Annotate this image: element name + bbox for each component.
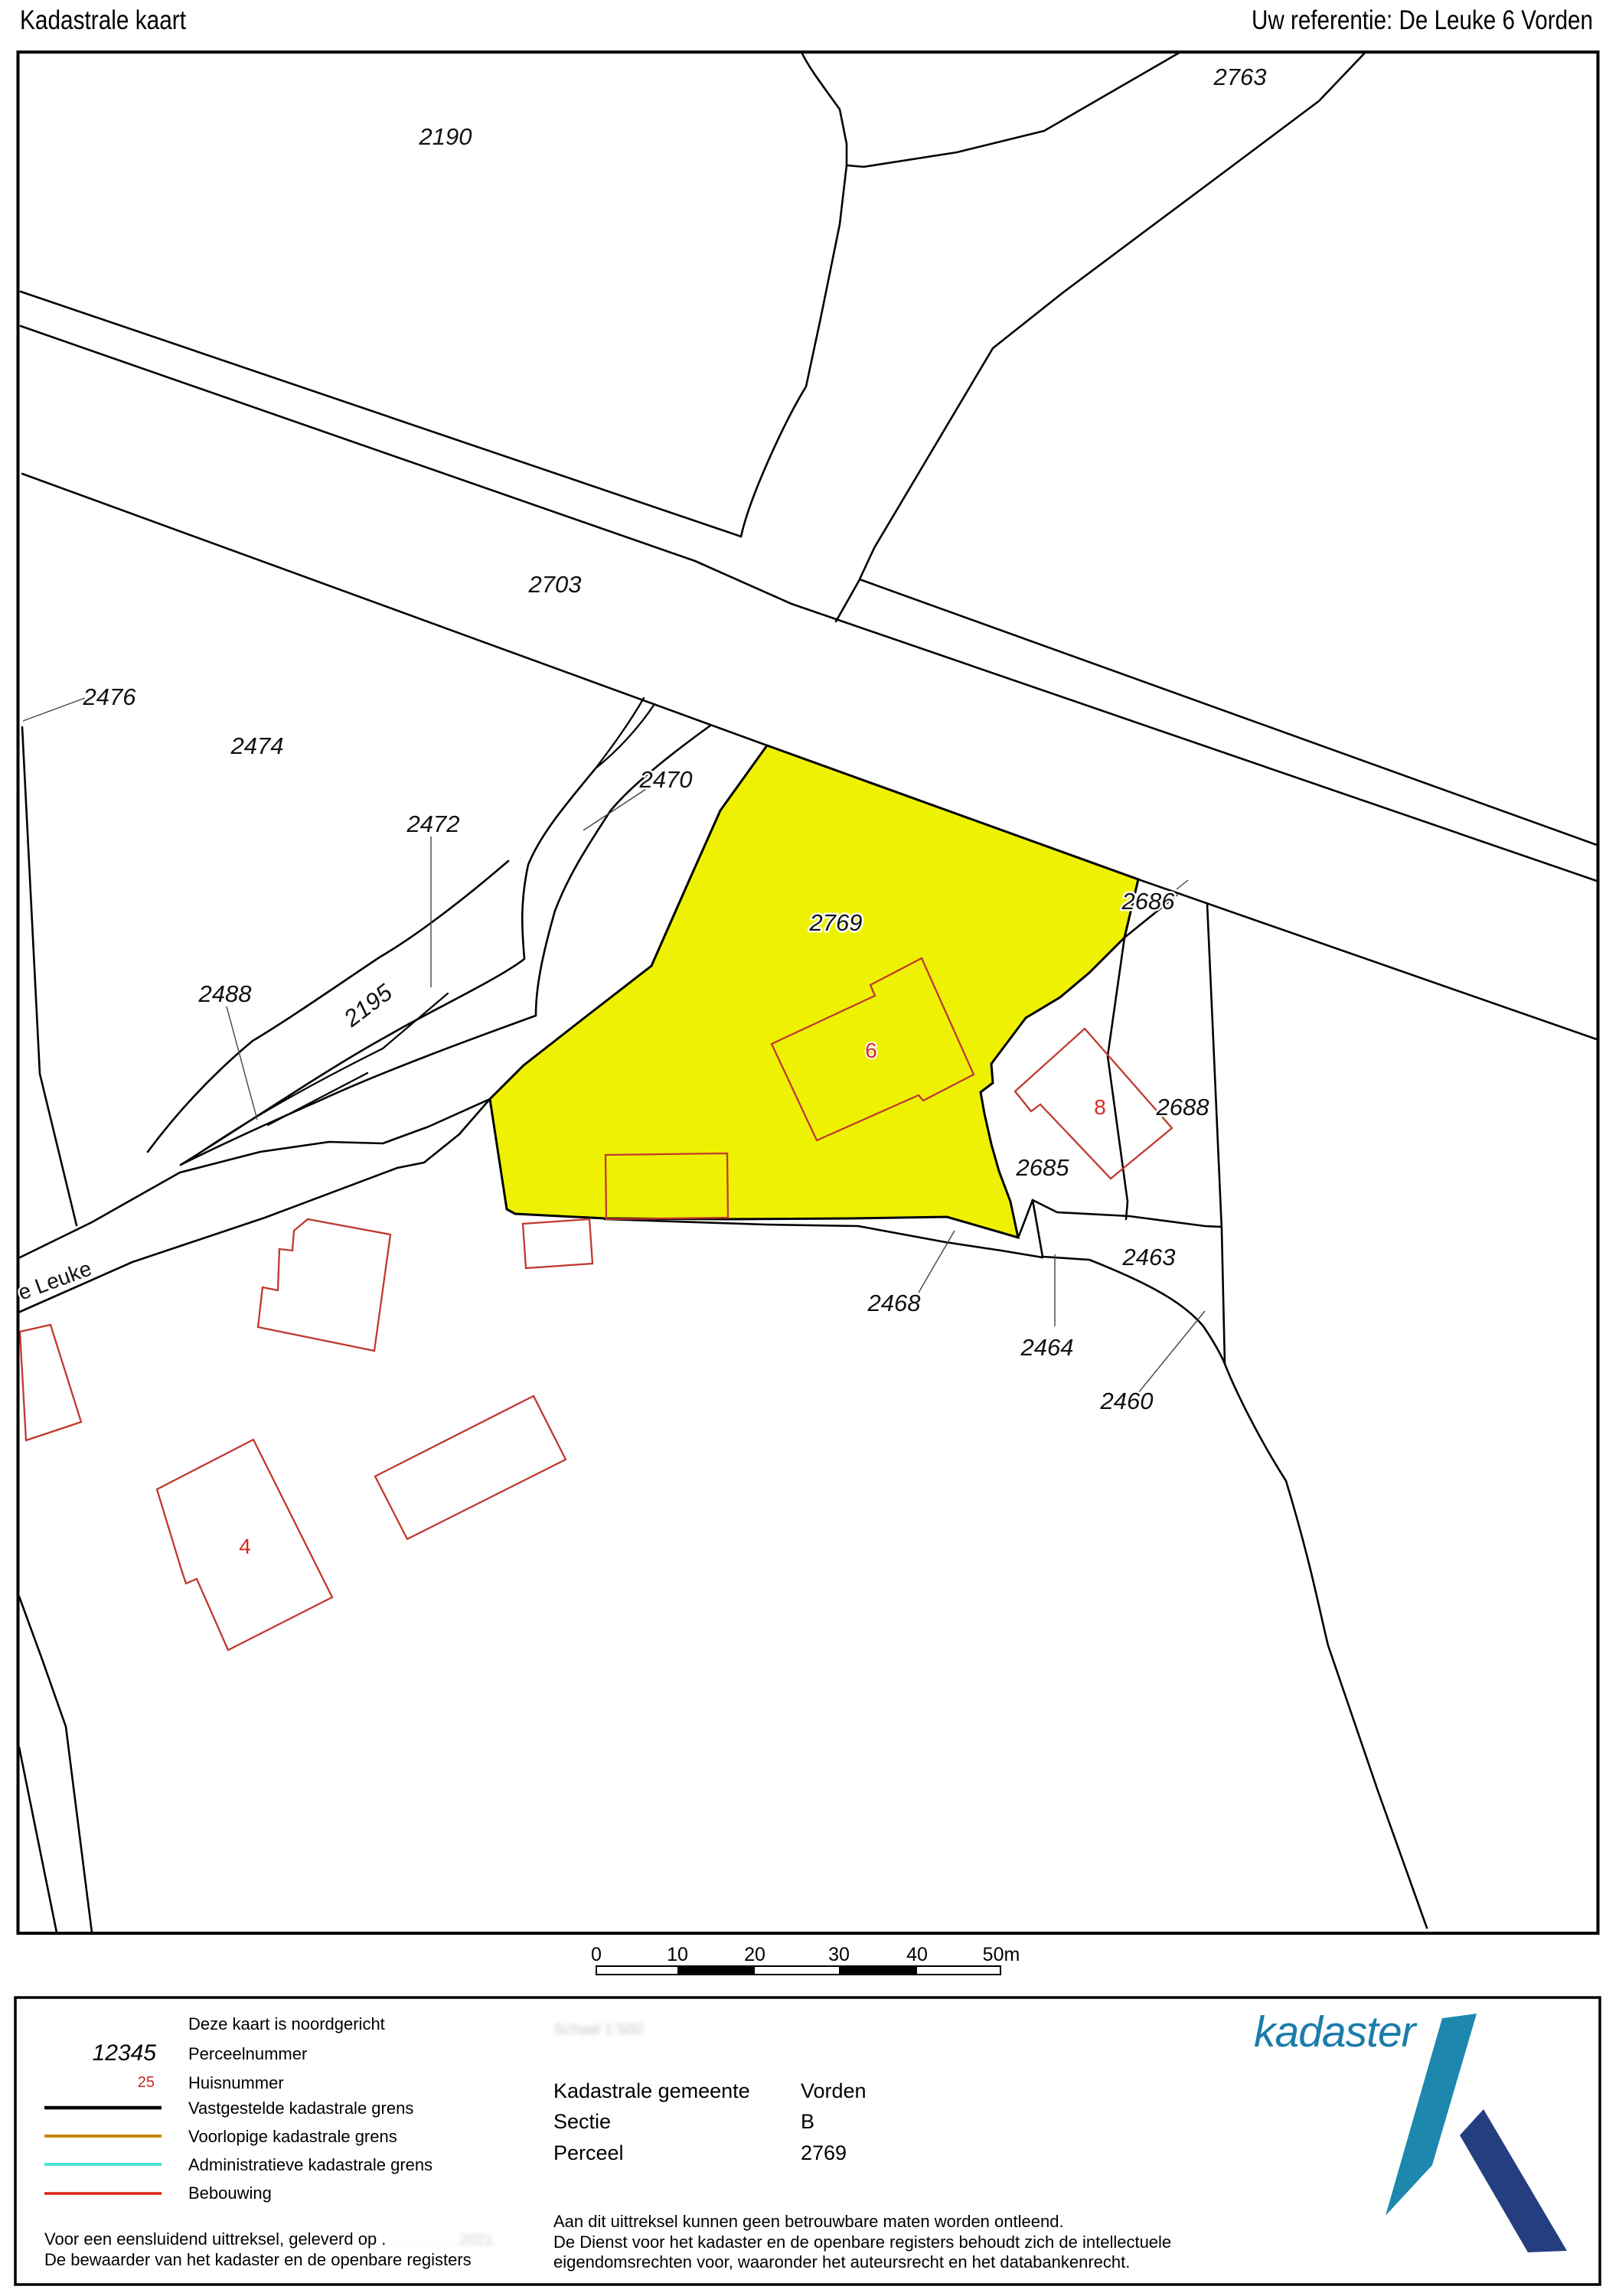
svg-text:Perceel: Perceel — [553, 2141, 624, 2164]
svg-text:Kadastrale gemeente: Kadastrale gemeente — [553, 2079, 750, 2102]
svg-text:Bebouwing: Bebouwing — [188, 2183, 272, 2203]
svg-text:2703: 2703 — [528, 571, 582, 598]
svg-text:2474: 2474 — [230, 732, 284, 759]
svg-text:De Dienst voor het kadaster en: De Dienst voor het kadaster en de openba… — [553, 2232, 1171, 2252]
svg-text:2769: 2769 — [801, 2141, 847, 2164]
svg-text:Administratieve kadastrale gre: Administratieve kadastrale grens — [188, 2155, 432, 2174]
svg-text:2769: 2769 — [809, 909, 863, 936]
svg-text:50m: 50m — [983, 1944, 1020, 1965]
svg-text:Vastgestelde kadastrale grens: Vastgestelde kadastrale grens — [188, 2099, 413, 2118]
svg-text:Vorden: Vorden — [801, 2079, 867, 2102]
svg-text:Voor een eensluidend uittrekse: Voor een eensluidend uittreksel, gelever… — [44, 2229, 386, 2249]
svg-text:2688: 2688 — [1156, 1094, 1210, 1120]
svg-text:Aan dit uittreksel kunnen geen: Aan dit uittreksel kunnen geen betrouwba… — [553, 2212, 1064, 2231]
svg-text:Kadastrale kaart: Kadastrale kaart — [20, 5, 186, 35]
svg-text:2470: 2470 — [639, 766, 693, 793]
svg-text:eigendomsrechten voor, waarond: eigendomsrechten voor, waaronder het aut… — [553, 2252, 1130, 2272]
svg-text:2472: 2472 — [406, 810, 460, 837]
svg-text:2190: 2190 — [419, 123, 472, 150]
svg-text:2685: 2685 — [1016, 1154, 1070, 1181]
svg-text:Huisnummer: Huisnummer — [188, 2073, 284, 2092]
svg-text:30: 30 — [828, 1944, 850, 1965]
svg-text:2488: 2488 — [198, 980, 253, 1007]
svg-text:Deze kaart is noordgericht: Deze kaart is noordgericht — [188, 2014, 385, 2033]
svg-text:2476: 2476 — [83, 683, 137, 710]
svg-text:Perceelnummer: Perceelnummer — [188, 2044, 307, 2063]
svg-text:2463: 2463 — [1122, 1244, 1176, 1270]
svg-text:8: 8 — [1094, 1095, 1106, 1119]
svg-text:25: 25 — [138, 2074, 155, 2091]
svg-text:Uw referentie: De Leuke 6 Vord: Uw referentie: De Leuke 6 Vorden — [1252, 5, 1593, 35]
svg-text:12345: 12345 — [93, 2040, 157, 2066]
svg-text:2468: 2468 — [867, 1290, 922, 1316]
svg-text:2464: 2464 — [1020, 1334, 1074, 1361]
svg-text:10: 10 — [667, 1944, 688, 1965]
svg-text:0: 0 — [591, 1944, 602, 1965]
svg-text:4: 4 — [239, 1534, 251, 1558]
svg-text:Schaal 1:500: Schaal 1:500 — [553, 2021, 643, 2038]
svg-text:20: 20 — [744, 1944, 765, 1965]
svg-text:De bewaarder van het kadaster: De bewaarder van het kadaster en de open… — [44, 2250, 472, 2269]
svg-text:6: 6 — [865, 1039, 877, 1062]
svg-text:B: B — [801, 2110, 814, 2133]
svg-text:2195: 2195 — [338, 978, 398, 1032]
svg-text:2460: 2460 — [1100, 1388, 1154, 1414]
svg-text:40: 40 — [906, 1944, 928, 1965]
svg-text:Sectie: Sectie — [553, 2110, 611, 2133]
svg-text:Voorlopige kadastrale grens: Voorlopige kadastrale grens — [188, 2127, 397, 2146]
svg-text:2686: 2686 — [1121, 888, 1176, 915]
svg-text:2763: 2763 — [1213, 64, 1267, 90]
svg-text:. . . . . . . . . 2021: . . . . . . . . . 2021 — [383, 2232, 494, 2249]
svg-text:kadaster: kadaster — [1254, 2007, 1418, 2056]
